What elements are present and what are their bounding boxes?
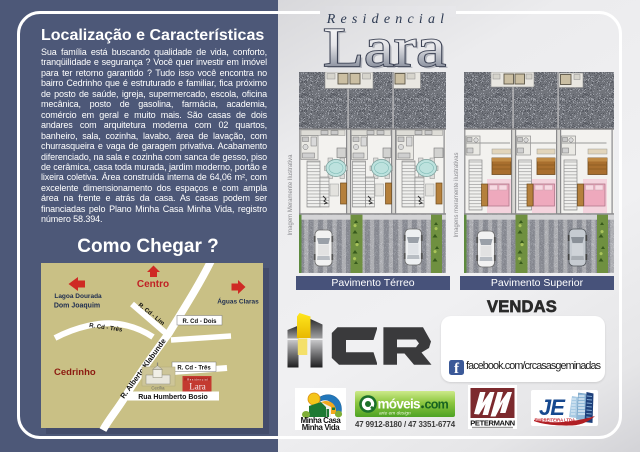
svg-text:Cecília: Cecília	[151, 386, 165, 391]
svg-text:arte em design: arte em design	[379, 411, 411, 417]
svg-text:Minha Vida: Minha Vida	[302, 423, 341, 430]
svg-text:Dom Joaquim: Dom Joaquim	[54, 303, 100, 310]
svg-text:com: com	[425, 398, 449, 412]
svg-text:Centro: Centro	[137, 279, 169, 290]
svg-text:Cedrinho: Cedrinho	[54, 367, 96, 378]
svg-text:R. Cd - Três: R. Cd - Três	[177, 366, 211, 372]
svg-text:Lara: Lara	[323, 20, 446, 72]
svg-text:R. Cd - Dois: R. Cd - Dois	[183, 319, 218, 325]
svg-text:móveis: móveis	[378, 397, 421, 412]
svg-text:EMPREITEIRA LTDA: EMPREITEIRA LTDA	[535, 418, 575, 423]
svg-text:PETERMANN: PETERMANN	[470, 419, 515, 428]
svg-text:Águas Claras: Águas Claras	[217, 297, 259, 306]
svg-text:JE: JE	[539, 395, 566, 420]
svg-text:Lara: Lara	[189, 382, 205, 392]
svg-text:Rua Humberto Bosio: Rua Humberto Bosio	[138, 394, 208, 401]
svg-text:Lagoa Dourada: Lagoa Dourada	[54, 293, 102, 300]
